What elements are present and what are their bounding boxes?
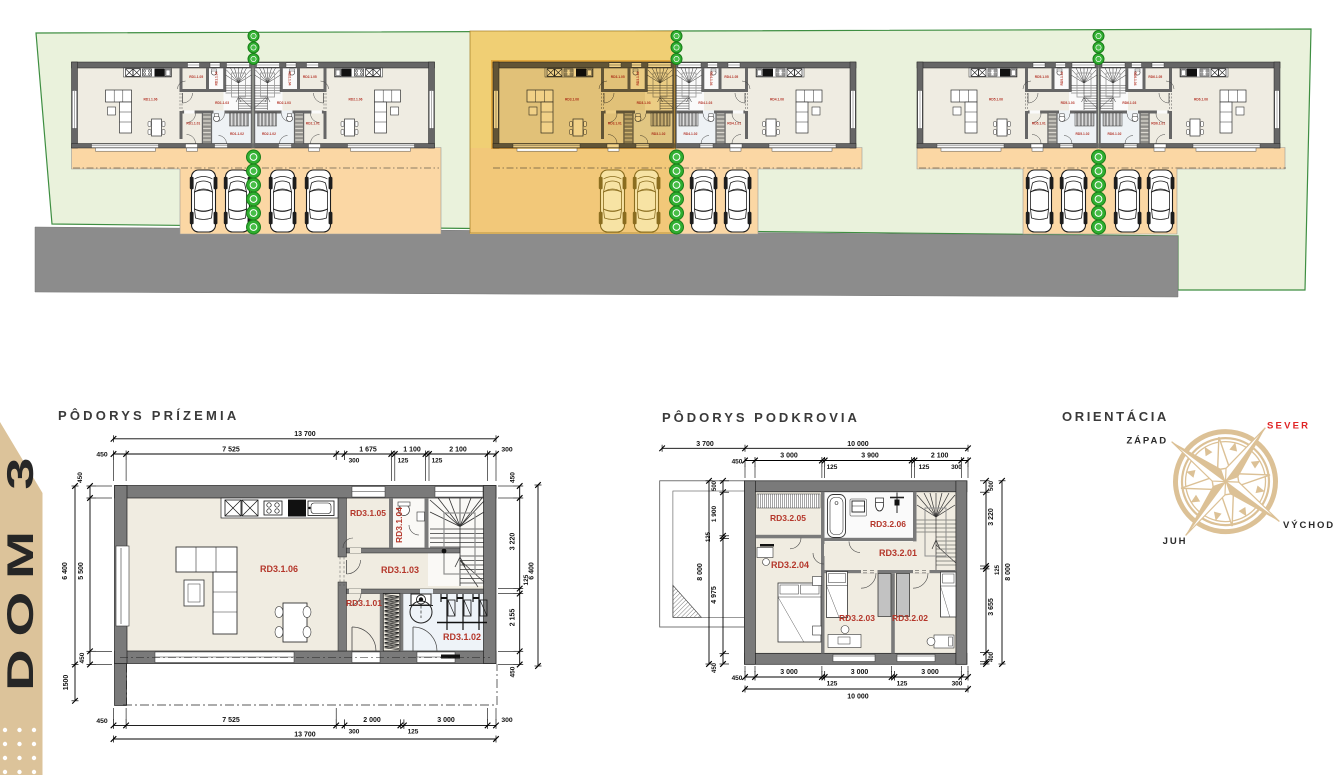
svg-text:450: 450 bbox=[96, 452, 108, 459]
svg-text:125: 125 bbox=[995, 564, 1001, 575]
svg-text:VÝCHOD: VÝCHOD bbox=[1283, 519, 1335, 531]
svg-text:RD1.1.03: RD1.1.03 bbox=[215, 101, 229, 105]
svg-text:450: 450 bbox=[510, 666, 517, 677]
svg-text:450: 450 bbox=[77, 472, 84, 483]
svg-text:RD2.1.01: RD2.1.01 bbox=[306, 122, 320, 126]
svg-text:RD6.1.05: RD6.1.05 bbox=[1148, 75, 1162, 79]
svg-text:RD2.1.03: RD2.1.03 bbox=[277, 101, 291, 105]
svg-text:500: 500 bbox=[712, 480, 718, 491]
svg-text:125: 125 bbox=[897, 681, 908, 688]
svg-text:RD4.1.03: RD4.1.03 bbox=[698, 101, 712, 105]
svg-text:450: 450 bbox=[732, 675, 743, 682]
svg-text:ZÁPAD: ZÁPAD bbox=[1126, 436, 1168, 447]
svg-text:3 000: 3 000 bbox=[780, 669, 798, 676]
svg-text:RD3.1.04: RD3.1.04 bbox=[394, 507, 404, 543]
svg-text:RD6.1.02: RD6.1.02 bbox=[1108, 132, 1122, 136]
svg-text:RD4.1.06: RD4.1.06 bbox=[770, 98, 784, 102]
svg-text:3 000: 3 000 bbox=[851, 669, 869, 676]
svg-text:5 500: 5 500 bbox=[78, 562, 85, 580]
svg-text:SEVER: SEVER bbox=[1267, 421, 1310, 432]
svg-text:PÔDORYS PRÍZEMIA: PÔDORYS PRÍZEMIA bbox=[58, 408, 239, 423]
svg-text:450: 450 bbox=[712, 662, 718, 673]
svg-text:RD2.1.04: RD2.1.04 bbox=[288, 72, 292, 86]
svg-text:RD1.1.01: RD1.1.01 bbox=[186, 122, 200, 126]
svg-text:3 000: 3 000 bbox=[921, 669, 939, 676]
svg-text:RD3.2.03: RD3.2.03 bbox=[839, 613, 875, 623]
svg-text:RD3.2.02: RD3.2.02 bbox=[892, 613, 928, 623]
svg-text:PÔDORYS PODKROVIA: PÔDORYS PODKROVIA bbox=[662, 410, 860, 425]
svg-text:RD5.1.04: RD5.1.04 bbox=[1060, 71, 1064, 85]
svg-text:RD3.1.03: RD3.1.03 bbox=[381, 565, 419, 575]
svg-text:125: 125 bbox=[432, 458, 443, 465]
svg-text:RD4.1.05: RD4.1.05 bbox=[724, 75, 738, 79]
svg-text:RD3.1.02: RD3.1.02 bbox=[443, 632, 481, 642]
svg-text:8 000: 8 000 bbox=[697, 563, 704, 581]
svg-text:RD4.1.04: RD4.1.04 bbox=[709, 72, 713, 86]
svg-text:1 675: 1 675 bbox=[359, 447, 377, 454]
svg-text:3 000: 3 000 bbox=[437, 717, 455, 724]
svg-text:2 000: 2 000 bbox=[363, 717, 381, 724]
svg-text:3 000: 3 000 bbox=[780, 453, 798, 460]
svg-text:8 000: 8 000 bbox=[1005, 563, 1012, 581]
svg-text:125: 125 bbox=[408, 729, 419, 736]
svg-text:RD3.2.01: RD3.2.01 bbox=[879, 548, 917, 558]
svg-text:4 975: 4 975 bbox=[711, 586, 718, 604]
svg-text:125: 125 bbox=[919, 464, 930, 471]
svg-text:10 000: 10 000 bbox=[847, 441, 869, 448]
svg-text:450: 450 bbox=[79, 652, 86, 663]
svg-text:13 700: 13 700 bbox=[294, 732, 316, 739]
svg-text:300: 300 bbox=[501, 717, 513, 724]
svg-text:2 100: 2 100 bbox=[449, 447, 467, 454]
svg-text:RD2.1.05: RD2.1.05 bbox=[303, 75, 317, 79]
svg-text:RD1.1.05: RD1.1.05 bbox=[189, 75, 203, 79]
svg-text:ORIENTÁCIA: ORIENTÁCIA bbox=[1062, 409, 1169, 424]
svg-text:RD3.2.05: RD3.2.05 bbox=[770, 513, 806, 523]
svg-text:2 155: 2 155 bbox=[510, 609, 517, 627]
svg-text:6 400: 6 400 bbox=[62, 562, 69, 580]
svg-text:RD5.1.03: RD5.1.03 bbox=[1061, 101, 1075, 105]
svg-text:1500: 1500 bbox=[63, 675, 70, 691]
svg-text:125: 125 bbox=[398, 458, 409, 465]
svg-text:10 000: 10 000 bbox=[847, 694, 869, 701]
svg-text:RD2.1.06: RD2.1.06 bbox=[349, 98, 363, 102]
svg-text:450: 450 bbox=[96, 718, 108, 725]
svg-text:13 700: 13 700 bbox=[294, 431, 316, 438]
svg-text:DOM 3: DOM 3 bbox=[0, 445, 41, 691]
svg-text:300: 300 bbox=[349, 458, 360, 465]
svg-text:RD6.1.03: RD6.1.03 bbox=[1122, 101, 1136, 105]
svg-text:7 525: 7 525 bbox=[222, 717, 240, 724]
svg-text:3 900: 3 900 bbox=[861, 453, 879, 460]
svg-text:RD5.1.05: RD5.1.05 bbox=[1035, 75, 1049, 79]
svg-text:RD5.1.02: RD5.1.02 bbox=[1076, 132, 1090, 136]
svg-text:RD4.1.02: RD4.1.02 bbox=[684, 132, 698, 136]
svg-text:3 655: 3 655 bbox=[988, 598, 995, 616]
svg-text:450: 450 bbox=[510, 472, 517, 483]
svg-text:3 220: 3 220 bbox=[510, 533, 517, 551]
svg-text:RD5.1.01: RD5.1.01 bbox=[1032, 122, 1046, 126]
svg-text:RD2.1.02: RD2.1.02 bbox=[262, 132, 276, 136]
svg-text:RD6.1.06: RD6.1.06 bbox=[1194, 98, 1208, 102]
svg-text:RD3.2.06: RD3.2.06 bbox=[870, 519, 906, 529]
svg-text:RD6.1.01: RD6.1.01 bbox=[1151, 122, 1165, 126]
svg-text:RD1.1.06: RD1.1.06 bbox=[144, 98, 158, 102]
svg-text:450: 450 bbox=[732, 459, 743, 466]
svg-text:300: 300 bbox=[952, 681, 963, 688]
svg-text:400: 400 bbox=[989, 651, 995, 662]
svg-text:300: 300 bbox=[349, 729, 360, 736]
svg-text:1 900: 1 900 bbox=[711, 505, 718, 522]
svg-text:6 400: 6 400 bbox=[529, 562, 536, 580]
svg-text:500: 500 bbox=[989, 480, 995, 491]
svg-text:125: 125 bbox=[827, 464, 838, 471]
svg-text:2 100: 2 100 bbox=[931, 453, 949, 460]
svg-text:7 525: 7 525 bbox=[222, 447, 240, 454]
svg-text:3 700: 3 700 bbox=[696, 441, 714, 448]
svg-text:RD3.2.04: RD3.2.04 bbox=[771, 560, 809, 570]
svg-text:1 100: 1 100 bbox=[403, 447, 421, 454]
svg-text:125: 125 bbox=[827, 681, 838, 688]
svg-text:RD3.1.06: RD3.1.06 bbox=[260, 564, 298, 574]
svg-text:RD3.1.01: RD3.1.01 bbox=[346, 598, 382, 608]
svg-text:300: 300 bbox=[501, 447, 513, 454]
svg-text:RD6.1.04: RD6.1.04 bbox=[1133, 72, 1137, 86]
svg-text:RD5.1.06: RD5.1.06 bbox=[989, 98, 1003, 102]
svg-text:JUH: JUH bbox=[1163, 536, 1188, 547]
svg-text:RD1.1.04: RD1.1.04 bbox=[215, 71, 219, 85]
svg-text:RD4.1.01: RD4.1.01 bbox=[727, 122, 741, 126]
svg-text:RD1.1.02: RD1.1.02 bbox=[230, 132, 244, 136]
svg-text:RD3.1.05: RD3.1.05 bbox=[350, 508, 386, 518]
svg-text:300: 300 bbox=[951, 464, 962, 471]
svg-text:3 220: 3 220 bbox=[988, 508, 995, 526]
